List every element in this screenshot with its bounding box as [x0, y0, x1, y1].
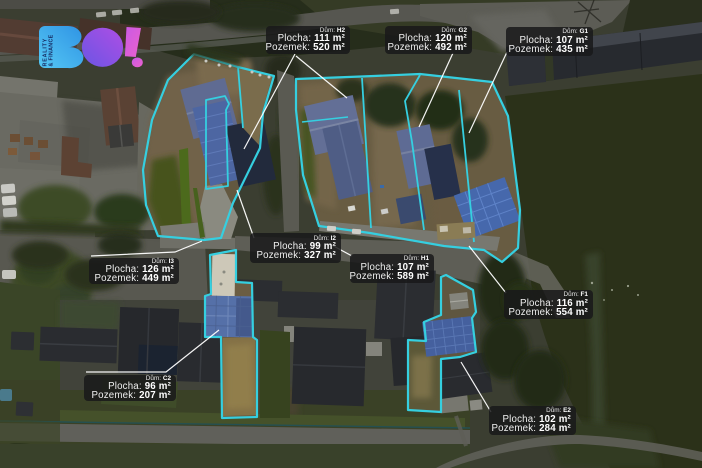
svg-text:& FINANCE: & FINANCE [49, 34, 55, 66]
